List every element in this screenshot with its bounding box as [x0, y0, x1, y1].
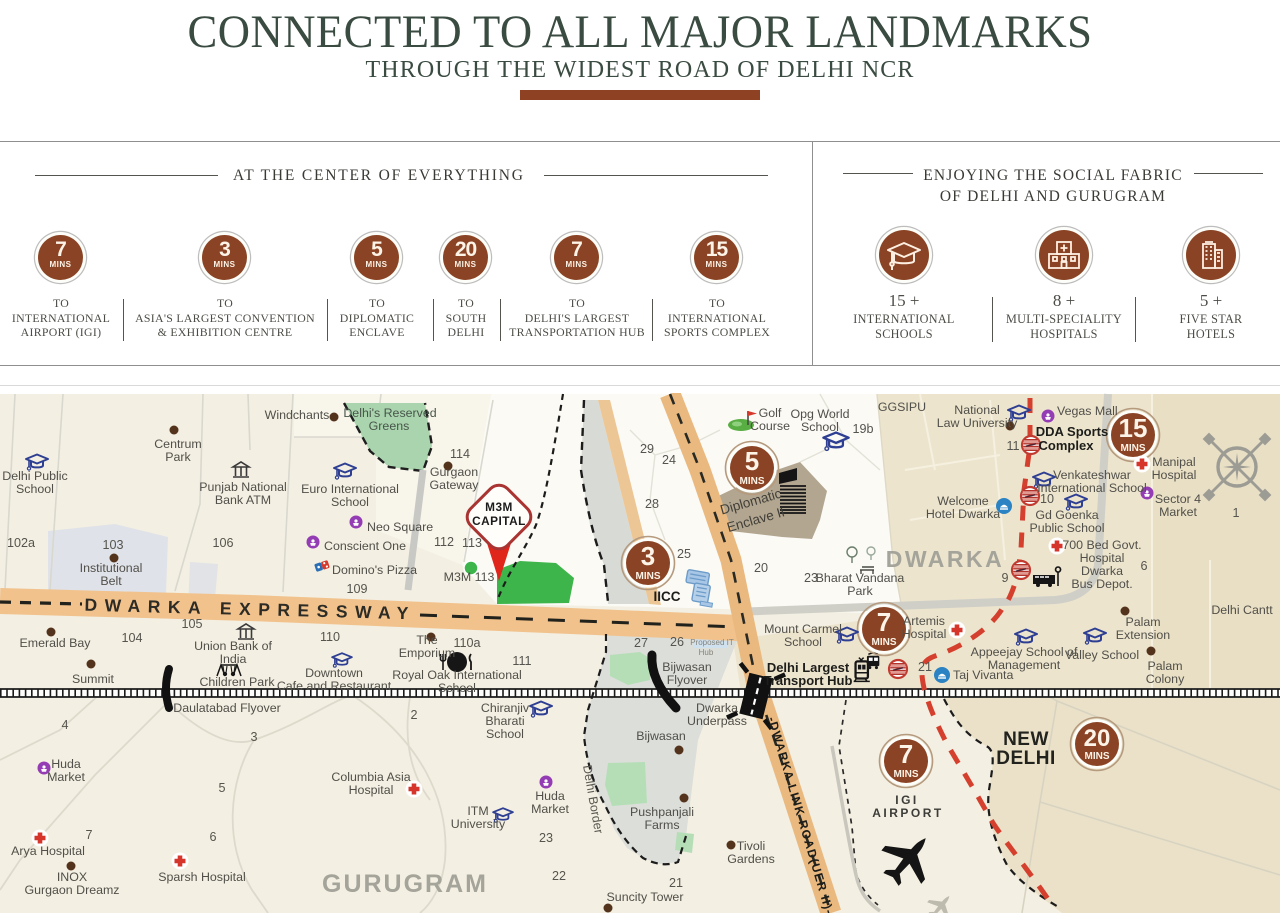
svg-text:AIRPORT: AIRPORT [872, 806, 944, 820]
svg-text:103: 103 [102, 538, 123, 552]
svg-text:School: School [784, 635, 822, 649]
svg-text:7: 7 [85, 828, 92, 842]
svg-text:MINS: MINS [636, 571, 661, 582]
svg-text:Valley School: Valley School [1065, 648, 1139, 662]
svg-text:University: University [451, 817, 506, 831]
svg-text:Hospital: Hospital [1080, 551, 1125, 565]
svg-text:1: 1 [1232, 506, 1239, 520]
svg-text:Hospital: Hospital [349, 783, 394, 797]
svg-text:School: School [331, 495, 369, 509]
svg-text:5: 5 [218, 781, 225, 795]
svg-text:Palam: Palam [1125, 615, 1160, 629]
svg-text:Hotel Dwarka: Hotel Dwarka [926, 507, 1000, 521]
svg-text:111: 111 [512, 654, 531, 668]
svg-text:27: 27 [634, 636, 648, 650]
svg-text:700 Bed Govt.: 700 Bed Govt. [1062, 538, 1141, 552]
svg-text:Proposed IT: Proposed IT [690, 638, 734, 647]
svg-text:Golf: Golf [759, 406, 782, 420]
svg-text:Bijwasan: Bijwasan [662, 660, 712, 674]
svg-text:4: 4 [61, 718, 68, 732]
svg-text:21: 21 [918, 660, 932, 674]
svg-text:28: 28 [645, 497, 659, 511]
svg-text:Summit: Summit [72, 672, 115, 686]
svg-text:DELHI: DELHI [996, 748, 1056, 769]
svg-text:5: 5 [745, 446, 759, 476]
svg-text:Delhi Public: Delhi Public [2, 469, 67, 483]
svg-text:Sector 4: Sector 4 [1155, 492, 1201, 506]
svg-text:Huda: Huda [535, 789, 565, 803]
svg-text:112: 112 [434, 535, 454, 549]
svg-text:Gateway: Gateway [430, 478, 480, 492]
svg-text:Emporium: Emporium [399, 646, 455, 660]
svg-text:Flyover: Flyover [667, 673, 708, 687]
svg-text:Artemis: Artemis [903, 614, 945, 628]
svg-text:Royal Oak International: Royal Oak International [392, 668, 522, 682]
svg-text:School: School [438, 681, 476, 695]
svg-text:6: 6 [209, 830, 216, 844]
svg-text:24: 24 [662, 453, 676, 467]
svg-text:Children Park: Children Park [199, 675, 275, 689]
svg-text:Market: Market [1159, 505, 1197, 519]
svg-text:Transport Hub: Transport Hub [764, 673, 853, 688]
svg-text:Colony: Colony [1146, 672, 1185, 686]
svg-text:GURUGRAM: GURUGRAM [322, 870, 488, 898]
svg-text:Sparsh Hospital: Sparsh Hospital [158, 870, 245, 884]
svg-text:Windchants: Windchants [265, 408, 330, 422]
svg-text:19b: 19b [852, 422, 873, 436]
svg-text:Emerald Bay: Emerald Bay [20, 636, 92, 650]
svg-text:Bijwasan: Bijwasan [636, 729, 686, 743]
svg-text:CAPITAL: CAPITAL [472, 514, 526, 528]
svg-text:M3M 113: M3M 113 [444, 570, 495, 584]
svg-text:GGSIPU: GGSIPU [878, 400, 926, 414]
svg-text:Punjab National: Punjab National [199, 480, 287, 494]
svg-text:105: 105 [181, 617, 202, 631]
svg-text:29: 29 [640, 442, 654, 456]
svg-text:Hospital: Hospital [1152, 468, 1197, 482]
svg-text:3: 3 [250, 730, 257, 744]
svg-text:Hub: Hub [699, 648, 714, 657]
svg-text:Market: Market [47, 770, 85, 784]
svg-text:9: 9 [1001, 571, 1008, 585]
svg-text:Park: Park [847, 584, 873, 598]
svg-text:Bank ATM: Bank ATM [215, 493, 271, 507]
svg-text:109: 109 [346, 582, 367, 596]
svg-text:Gurgaon: Gurgaon [430, 465, 478, 479]
svg-text:104: 104 [121, 631, 142, 645]
svg-text:Delhi Cantt: Delhi Cantt [1211, 603, 1273, 617]
svg-text:DWARKA: DWARKA [886, 546, 1005, 572]
svg-text:Pushpanjali: Pushpanjali [630, 805, 694, 819]
svg-text:25: 25 [677, 547, 691, 561]
svg-text:106: 106 [212, 536, 233, 550]
svg-text:Suncity Tower: Suncity Tower [607, 890, 684, 904]
svg-text:Market: Market [531, 802, 569, 816]
svg-text:School: School [16, 482, 54, 496]
svg-text:Gd Goenka: Gd Goenka [1035, 508, 1098, 522]
svg-text:7: 7 [899, 739, 913, 769]
svg-text:22: 22 [552, 869, 566, 883]
svg-text:2: 2 [410, 708, 417, 722]
svg-text:Complex: Complex [1039, 438, 1095, 453]
svg-text:INOX: INOX [57, 870, 87, 884]
svg-text:21: 21 [669, 876, 683, 890]
svg-text:113: 113 [462, 536, 482, 550]
svg-text:Arya Hospital: Arya Hospital [11, 844, 85, 858]
svg-text:Park: Park [165, 450, 191, 464]
svg-text:India: India [220, 652, 247, 666]
svg-text:Vegas Mall: Vegas Mall [1057, 404, 1118, 418]
svg-text:Euro International: Euro International [301, 482, 399, 496]
svg-text:IGI: IGI [895, 793, 919, 807]
svg-text:Underpass: Underpass [687, 714, 747, 728]
svg-text:6: 6 [1140, 559, 1147, 573]
svg-text:Gurgaon Dreamz: Gurgaon Dreamz [24, 883, 119, 897]
svg-text:Law University: Law University [937, 416, 1018, 430]
svg-text:23: 23 [539, 831, 553, 845]
svg-text:Extension: Extension [1116, 628, 1171, 642]
svg-text:Belt: Belt [100, 574, 122, 588]
svg-text:114: 114 [450, 447, 470, 461]
svg-text:Venkateshwar: Venkateshwar [1053, 468, 1131, 482]
svg-text:MINS: MINS [894, 769, 919, 780]
svg-text:National: National [954, 403, 999, 417]
svg-text:110a: 110a [453, 636, 480, 650]
svg-text:Institutional: Institutional [80, 561, 143, 575]
svg-text:MINS: MINS [1085, 751, 1110, 762]
svg-text:MINS: MINS [872, 637, 897, 648]
svg-text:Tivoli: Tivoli [737, 839, 765, 853]
svg-text:Dwarka: Dwarka [696, 701, 738, 715]
svg-text:Bharati: Bharati [485, 714, 524, 728]
svg-text:Palam: Palam [1147, 659, 1182, 673]
svg-text:Mount Carmel: Mount Carmel [764, 622, 842, 636]
svg-text:10: 10 [1040, 492, 1054, 506]
svg-text:Farms: Farms [644, 818, 679, 832]
svg-text:Chiranjiv: Chiranjiv [481, 701, 530, 715]
svg-text:3: 3 [641, 541, 655, 571]
svg-text:Greens: Greens [369, 419, 410, 433]
svg-text:School: School [801, 420, 839, 434]
svg-text:Gardens: Gardens [727, 852, 775, 866]
svg-text:Daulatabad Flyover: Daulatabad Flyover [173, 701, 280, 715]
svg-text:102a: 102a [7, 536, 35, 550]
svg-text:Cafe and Restaurant: Cafe and Restaurant [277, 679, 392, 693]
svg-text:Dwarka: Dwarka [1081, 564, 1123, 578]
svg-text:MINS: MINS [740, 476, 765, 487]
svg-text:Delhi's Reserved: Delhi's Reserved [343, 406, 436, 420]
svg-text:M3M: M3M [485, 500, 513, 514]
svg-text:IICC: IICC [654, 589, 681, 604]
svg-text:The: The [416, 633, 437, 647]
svg-text:Appeejay School of: Appeejay School of [971, 645, 1078, 659]
svg-text:23: 23 [804, 571, 818, 585]
svg-text:DDA Sports: DDA Sports [1036, 424, 1108, 439]
svg-text:20: 20 [754, 561, 768, 575]
svg-text:Neo Square: Neo Square [367, 520, 433, 534]
svg-text:ITM: ITM [467, 804, 488, 818]
svg-text:MINS: MINS [1121, 443, 1146, 454]
svg-text:110: 110 [320, 630, 340, 644]
svg-text:Columbia Asia: Columbia Asia [331, 770, 410, 784]
svg-text:Hospital: Hospital [902, 627, 947, 641]
svg-text:Management: Management [988, 658, 1061, 672]
svg-text:NEW: NEW [1003, 729, 1049, 750]
svg-text:Downtown: Downtown [305, 666, 363, 680]
svg-text:Bus Depot.: Bus Depot. [1071, 577, 1132, 591]
svg-text:Domino's Pizza: Domino's Pizza [332, 563, 417, 577]
svg-text:Public School: Public School [1029, 521, 1104, 535]
svg-text:26: 26 [670, 635, 684, 649]
svg-text:Welcome: Welcome [937, 494, 989, 508]
svg-text:7: 7 [877, 607, 891, 637]
svg-text:Opg World: Opg World [791, 407, 850, 421]
svg-text:Bharat Vandana: Bharat Vandana [816, 571, 905, 585]
svg-text:Huda: Huda [51, 757, 81, 771]
svg-text:Manipal: Manipal [1152, 455, 1195, 469]
svg-text:20: 20 [1084, 725, 1111, 752]
svg-text:15: 15 [1119, 413, 1148, 443]
svg-text:11: 11 [1006, 439, 1019, 453]
svg-text:Conscient One: Conscient One [324, 539, 406, 553]
svg-text:Centrum: Centrum [154, 437, 202, 451]
svg-text:School: School [486, 727, 524, 741]
svg-text:Course: Course [750, 419, 790, 433]
svg-text:Union Bank of: Union Bank of [194, 639, 272, 653]
